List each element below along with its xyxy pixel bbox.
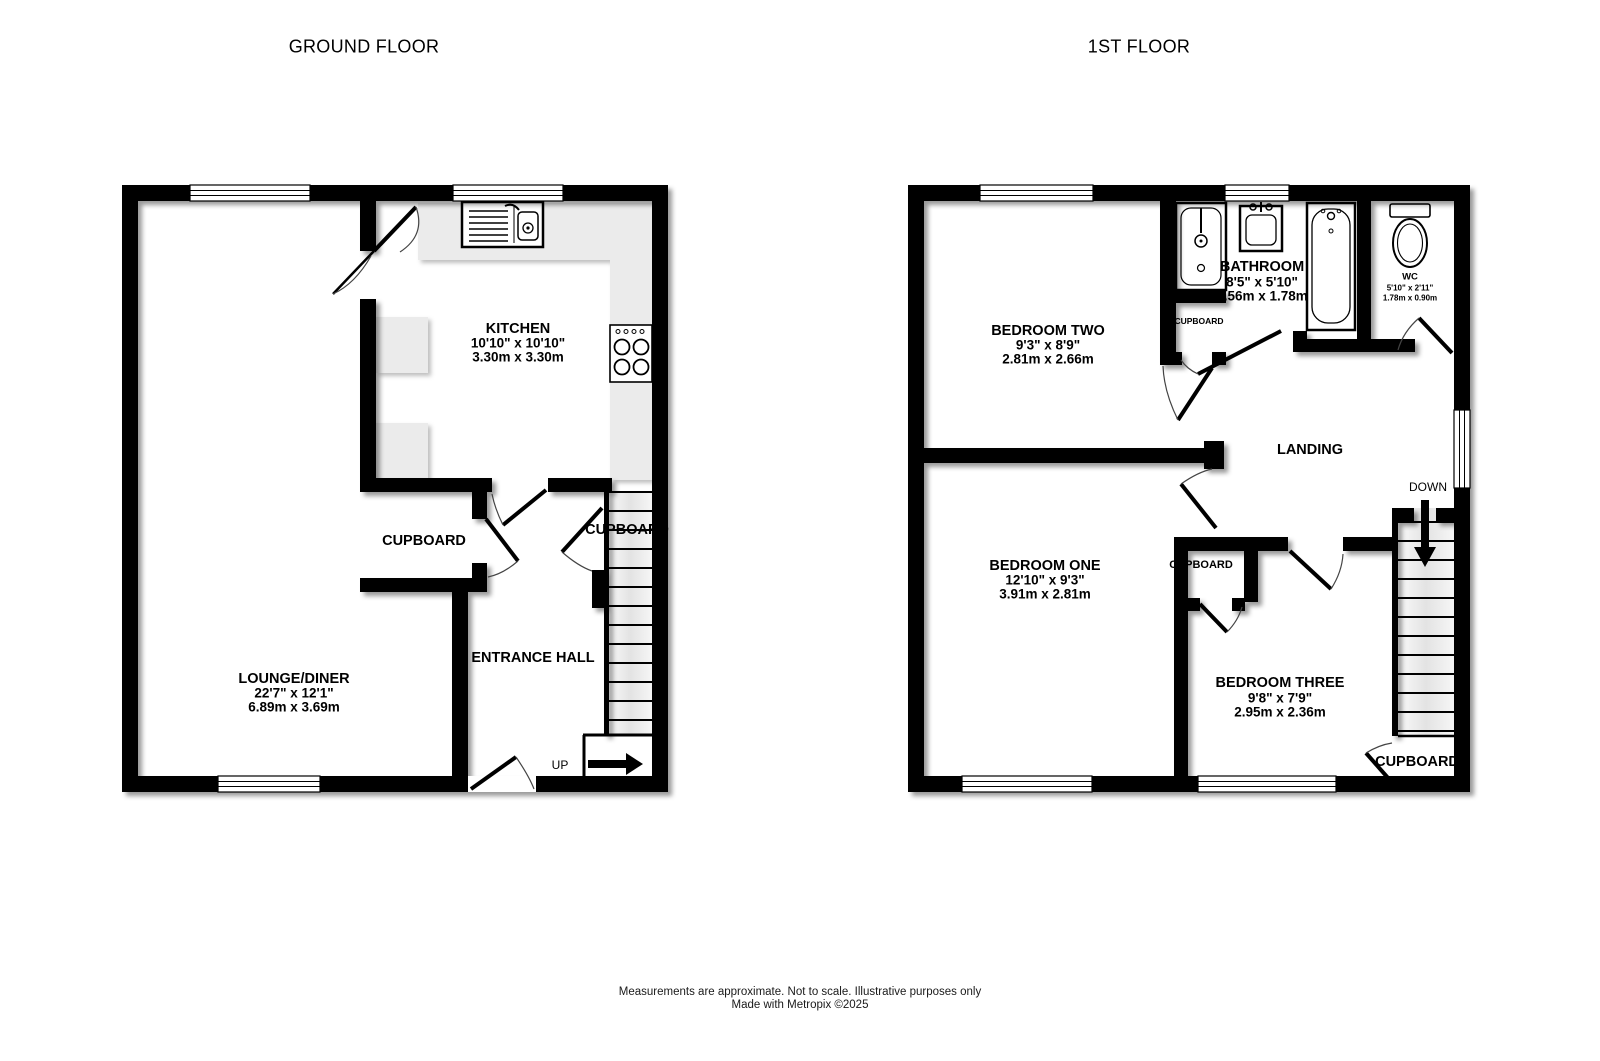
room-dims-bathroom-imperial: 8'5" x 5'10": [1226, 275, 1298, 290]
room-label-bedroom-three: BEDROOM THREE: [1216, 675, 1345, 691]
stairs-up-label: UP: [552, 758, 569, 772]
first-floor-windows: [962, 185, 1470, 792]
door: [486, 519, 518, 577]
credit-text: Made with Metropix ©2025: [732, 999, 869, 1011]
room-label-entrance-hall: ENTRANCE HALL: [471, 650, 594, 666]
window: [190, 185, 310, 201]
room-dims-bedroom-three-metric: 2.95m x 2.36m: [1234, 705, 1326, 720]
ground-floor-title: GROUND FLOOR: [289, 37, 440, 58]
bathtub: [1307, 203, 1355, 330]
floorplan-walls: [0, 0, 1600, 1061]
door: [1181, 331, 1281, 374]
front-door-gap: [468, 776, 536, 792]
door: [492, 490, 546, 525]
door: [1398, 318, 1452, 353]
floorplan-page: GROUND FLOOR 1ST FLOOR KITCHEN 10'10" x …: [0, 0, 1600, 1061]
ground-floor-underlay: [376, 202, 652, 776]
window: [1198, 776, 1336, 792]
kitchen-sink: [462, 202, 543, 247]
ground-doors: [333, 207, 602, 789]
door: [1163, 366, 1212, 420]
bathroom-sink: [1240, 202, 1282, 251]
room-dims-bedroom-two-imperial: 9'3" x 8'9": [1016, 338, 1080, 353]
room-label-cupboard-left: CUPBOARD: [382, 533, 466, 549]
room-dims-bedroom-three-imperial: 9'8" x 7'9": [1248, 691, 1312, 706]
room-dims-kitchen-metric: 3.30m x 3.30m: [472, 350, 564, 365]
window: [980, 185, 1093, 201]
door: [333, 207, 419, 294]
door: [562, 508, 602, 571]
stairs-down: [1398, 508, 1454, 736]
stove: [610, 325, 652, 382]
door: [1200, 604, 1242, 632]
room-label-cupboard-middle: CUPBOARD: [1169, 559, 1233, 571]
room-label-cupboard-bathroom: CUPBOARD: [1174, 316, 1223, 326]
room-dims-wc-metric: 1.78m x 0.90m: [1383, 294, 1437, 303]
floorplan-underlay: [0, 0, 1600, 1061]
room-dims-wc-imperial: 5'10" x 2'11": [1387, 284, 1434, 293]
room-dims-bedroom-one-metric: 3.91m x 2.81m: [999, 587, 1091, 602]
room-label-bathroom: BATHROOM: [1220, 259, 1304, 275]
door: [1181, 469, 1216, 528]
room-dims-bedroom-one-imperial: 12'10" x 9'3": [1005, 573, 1084, 588]
window: [1454, 410, 1470, 488]
first-floor-walls: [908, 185, 1470, 792]
stairs-down-label: DOWN: [1409, 480, 1447, 494]
room-dims-lounge-metric: 6.89m x 3.69m: [248, 700, 340, 715]
room-label-landing: LANDING: [1277, 442, 1343, 458]
room-dims-lounge-imperial: 22'7" x 12'1": [254, 686, 333, 701]
room-dims-bedroom-two-metric: 2.81m x 2.66m: [1002, 352, 1094, 367]
ground-windows: [190, 185, 563, 792]
room-dims-bathroom-metric: 2.56m x 1.78m: [1216, 289, 1308, 304]
window: [218, 776, 320, 792]
down-arrow-icon: [1414, 500, 1436, 567]
room-label-cupboard-understairs-ff: CUPBOARD: [1375, 754, 1459, 770]
disclaimer-text: Measurements are approximate. Not to sca…: [619, 986, 981, 998]
window: [453, 185, 563, 201]
window: [962, 776, 1092, 792]
up-arrow-icon: [588, 753, 643, 775]
room-label-wc: WC: [1402, 272, 1418, 283]
door: [471, 757, 534, 789]
door: [1290, 551, 1343, 589]
ground-floor-walls: [122, 185, 668, 792]
window: [1225, 185, 1289, 201]
shower: [1176, 203, 1226, 290]
toilet: [1390, 204, 1430, 267]
first-floor-title: 1ST FLOOR: [1088, 37, 1190, 58]
room-dims-kitchen-imperial: 10'10" x 10'10": [471, 336, 565, 351]
room-label-cupboard-understairs-gf: CUPBOARD: [585, 522, 669, 538]
